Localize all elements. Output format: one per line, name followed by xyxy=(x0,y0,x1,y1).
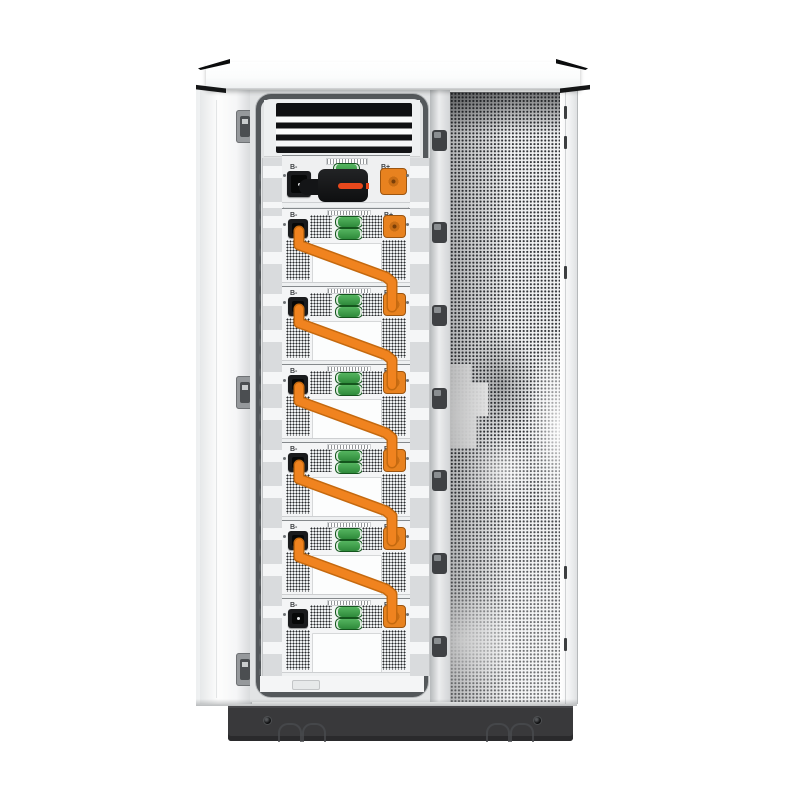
fork-slot-arch xyxy=(302,723,326,742)
neg-terminal-label: B- xyxy=(290,602,297,609)
right-side-frame xyxy=(560,90,578,704)
breaker-indicator-tick xyxy=(366,183,369,189)
b-plus-connector xyxy=(383,527,406,550)
screw xyxy=(406,457,409,460)
vent-dots xyxy=(286,318,310,358)
neg-terminal-label: B- xyxy=(290,290,297,297)
frame-latch-mark xyxy=(564,136,567,149)
screw xyxy=(406,223,409,226)
comm-connector xyxy=(335,294,363,306)
screw xyxy=(406,613,409,616)
screw xyxy=(406,535,409,538)
vent-dots xyxy=(310,449,332,472)
vent-louver xyxy=(276,103,412,153)
frame-latch-mark xyxy=(564,266,567,279)
b-plus-connector xyxy=(380,168,407,195)
screw xyxy=(406,379,409,382)
b-plus-connector xyxy=(383,293,406,316)
frame-latch-mark xyxy=(564,566,567,579)
vent-dots xyxy=(382,396,406,436)
vent-dots xyxy=(362,605,382,628)
door-crease xyxy=(216,100,217,698)
vent-dots xyxy=(310,371,332,394)
bay-bottom-panel xyxy=(260,676,424,692)
vent-dots xyxy=(362,449,382,472)
module-label-plate xyxy=(312,555,382,595)
base-screw xyxy=(263,716,272,725)
screw xyxy=(283,379,286,382)
rack-rail-left xyxy=(262,158,284,676)
comm-connector xyxy=(335,540,363,552)
comm-connector xyxy=(335,462,363,474)
vent-dots xyxy=(362,371,382,394)
screw xyxy=(283,301,286,304)
screw xyxy=(283,613,286,616)
bay-bottom-slot xyxy=(292,680,320,690)
b-minus-connector xyxy=(288,531,308,550)
battery-module-5: B- B+ xyxy=(282,520,410,599)
vent-dots xyxy=(310,527,332,550)
b-plus-connector xyxy=(383,371,406,394)
neg-terminal-label: B- xyxy=(290,212,297,219)
vent-dots xyxy=(310,215,332,238)
vent-dots xyxy=(286,630,310,670)
vent-dots xyxy=(382,240,406,280)
vent-dots xyxy=(382,630,406,670)
vent-dots xyxy=(362,293,382,316)
comm-connector xyxy=(335,384,363,396)
b-minus-connector xyxy=(288,375,308,394)
divider-hinge xyxy=(432,305,447,326)
breaker-indicator xyxy=(338,183,363,189)
divider-hinge xyxy=(432,553,447,574)
divider-hinge xyxy=(432,388,447,409)
fork-slot-arch xyxy=(486,723,510,742)
screw xyxy=(283,535,286,538)
vent-dots xyxy=(310,293,332,316)
cabinet-top-cap xyxy=(206,62,580,89)
comm-connector xyxy=(335,306,363,318)
module-label-plate xyxy=(312,399,382,439)
vent-dots xyxy=(286,396,310,436)
battery-module-2: B- B+ xyxy=(282,286,410,365)
fork-slot-arch xyxy=(278,723,302,742)
comm-connector xyxy=(335,528,363,540)
vent-dots xyxy=(382,552,406,592)
comm-connector xyxy=(335,216,363,228)
rack-rail-right xyxy=(408,158,430,676)
screw xyxy=(283,457,286,460)
battery-module-6: B- B+ xyxy=(282,598,410,677)
scene: B- B+ B- B+ B- B+ xyxy=(0,0,800,800)
module-label-plate xyxy=(312,321,382,361)
comm-connector xyxy=(335,618,363,630)
module-label-plate xyxy=(312,243,382,283)
vent-dots xyxy=(310,605,332,628)
vent-dots xyxy=(362,215,382,238)
base-screw xyxy=(533,716,542,725)
comm-connector xyxy=(335,372,363,384)
b-minus-connector xyxy=(288,609,308,628)
b-minus-connector xyxy=(288,219,308,238)
screw xyxy=(283,174,286,177)
comm-connector xyxy=(335,228,363,240)
divider-hinge xyxy=(432,636,447,657)
b-plus-connector xyxy=(383,605,406,628)
vent-dots xyxy=(286,474,310,514)
divider-hinge xyxy=(432,470,447,491)
vent-dots xyxy=(382,474,406,514)
module-label-plate xyxy=(312,477,382,517)
perforated-right-door xyxy=(450,92,560,702)
screw xyxy=(283,223,286,226)
b-minus-connector xyxy=(288,453,308,472)
vent-dots xyxy=(382,318,406,358)
frame-latch-mark xyxy=(564,638,567,651)
battery-module-3: B- B+ xyxy=(282,364,410,443)
battery-module-4: B- B+ xyxy=(282,442,410,521)
frame-latch-mark xyxy=(564,106,567,119)
b-plus-connector xyxy=(383,215,406,238)
screw xyxy=(406,301,409,304)
body-bottom-shadow xyxy=(196,699,577,706)
comm-connector xyxy=(335,606,363,618)
fork-slot-arch xyxy=(510,723,534,742)
neg-terminal-label: B- xyxy=(290,368,297,375)
vent-dots xyxy=(286,552,310,592)
b-minus-connector xyxy=(288,297,308,316)
neg-terminal-label: B- xyxy=(290,446,297,453)
divider-hinge xyxy=(432,222,447,243)
b-plus-connector xyxy=(383,449,406,472)
neg-terminal-label: B- xyxy=(290,164,297,171)
comm-connector xyxy=(335,450,363,462)
module-label-plate xyxy=(312,633,382,673)
battery-module-1: B- B+ xyxy=(282,208,410,287)
neg-terminal-label: B- xyxy=(290,524,297,531)
screw xyxy=(406,174,409,177)
cabinet-base xyxy=(228,706,573,741)
mesh-lighting-overlay xyxy=(450,92,560,702)
panel-seam xyxy=(565,90,566,704)
divider-hinge xyxy=(432,130,447,151)
vent-dots xyxy=(362,527,382,550)
switch-unit: B- B+ xyxy=(282,155,410,207)
vent-dots xyxy=(286,240,310,280)
